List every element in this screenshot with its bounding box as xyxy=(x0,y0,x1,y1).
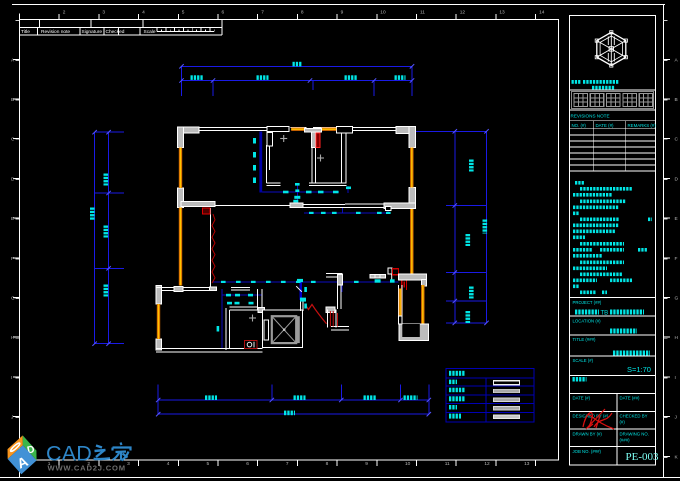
svg-text:8: 8 xyxy=(326,461,329,467)
svg-text:PE-003: PE-003 xyxy=(626,451,660,463)
svg-text:3: 3 xyxy=(102,10,105,16)
svg-text:TITLE (###): TITLE (###) xyxy=(573,337,596,342)
svg-text:14: 14 xyxy=(539,10,545,16)
svg-text:13: 13 xyxy=(524,461,530,467)
svg-text:(#): (#) xyxy=(620,420,626,425)
svg-text:C: C xyxy=(11,137,15,143)
svg-text:4: 4 xyxy=(167,461,170,467)
svg-text:I: I xyxy=(11,375,12,381)
svg-text:4: 4 xyxy=(142,10,145,16)
svg-text:6: 6 xyxy=(222,10,225,16)
svg-text:WWW.CAD2J.COM: WWW.CAD2J.COM xyxy=(48,464,126,473)
svg-text:CHECKED BY: CHECKED BY xyxy=(620,414,648,419)
svg-text:Title: Title xyxy=(21,29,30,35)
svg-text:DATE (#): DATE (#) xyxy=(596,123,615,128)
svg-text:7: 7 xyxy=(261,10,264,16)
svg-text:DRAWING NO.: DRAWING NO. xyxy=(620,432,649,437)
svg-text:8: 8 xyxy=(301,10,304,16)
svg-text:11: 11 xyxy=(445,461,450,467)
svg-text:10: 10 xyxy=(380,10,386,16)
svg-text:JOB NO. (###): JOB NO. (###) xyxy=(573,449,602,454)
svg-text:12: 12 xyxy=(484,461,490,467)
svg-text:REVISIONS NOTE: REVISIONS NOTE xyxy=(571,114,610,119)
svg-text:CAD: CAD xyxy=(46,441,92,465)
svg-text:Checked: Checked xyxy=(106,29,125,35)
svg-text:C: C xyxy=(675,137,679,143)
svg-text:(###): (###) xyxy=(620,438,631,443)
svg-text:E: E xyxy=(11,216,14,222)
svg-text:B: B xyxy=(675,97,678,103)
svg-text:7: 7 xyxy=(286,461,289,467)
svg-text:I: I xyxy=(675,375,676,381)
svg-text:D: D xyxy=(675,176,679,182)
svg-text:D: D xyxy=(11,176,15,182)
svg-text:REMARKS (#): REMARKS (#) xyxy=(628,123,657,128)
svg-text:11: 11 xyxy=(420,10,425,16)
svg-text:Revision note: Revision note xyxy=(41,29,70,35)
svg-text:G: G xyxy=(675,296,679,302)
svg-text:DRAWN BY (#): DRAWN BY (#) xyxy=(573,432,603,437)
svg-text:2: 2 xyxy=(63,10,66,16)
svg-text:F: F xyxy=(11,256,14,262)
svg-text:5: 5 xyxy=(182,10,185,16)
svg-text:B: B xyxy=(11,97,14,103)
svg-text:3: 3 xyxy=(127,461,130,467)
svg-text:E: E xyxy=(675,216,678,222)
svg-text:Signature: Signature xyxy=(82,29,103,35)
svg-text:13: 13 xyxy=(499,10,505,16)
svg-text:PROJECT (##): PROJECT (##) xyxy=(573,300,602,305)
svg-text:NO. (#): NO. (#) xyxy=(572,123,587,128)
svg-text:H: H xyxy=(11,335,15,341)
svg-text:DATE (##): DATE (##) xyxy=(620,396,641,401)
svg-text:9: 9 xyxy=(365,461,368,467)
svg-text:Scale: Scale xyxy=(144,29,156,35)
svg-text:5: 5 xyxy=(207,461,210,467)
svg-text:6: 6 xyxy=(246,461,249,467)
svg-text:S=1:70: S=1:70 xyxy=(627,365,651,374)
svg-text:LOCATION (#): LOCATION (#) xyxy=(573,319,602,324)
svg-text:10: 10 xyxy=(405,461,411,467)
svg-text:TB: TB xyxy=(601,311,609,317)
svg-text:G: G xyxy=(11,296,15,302)
svg-text:H: H xyxy=(675,335,679,341)
svg-text:12: 12 xyxy=(460,10,466,16)
svg-text:9: 9 xyxy=(341,10,344,16)
svg-text:SCALE (#): SCALE (#) xyxy=(573,358,594,363)
svg-text:DATE (#): DATE (#) xyxy=(573,396,591,401)
svg-text:F: F xyxy=(675,256,678,262)
